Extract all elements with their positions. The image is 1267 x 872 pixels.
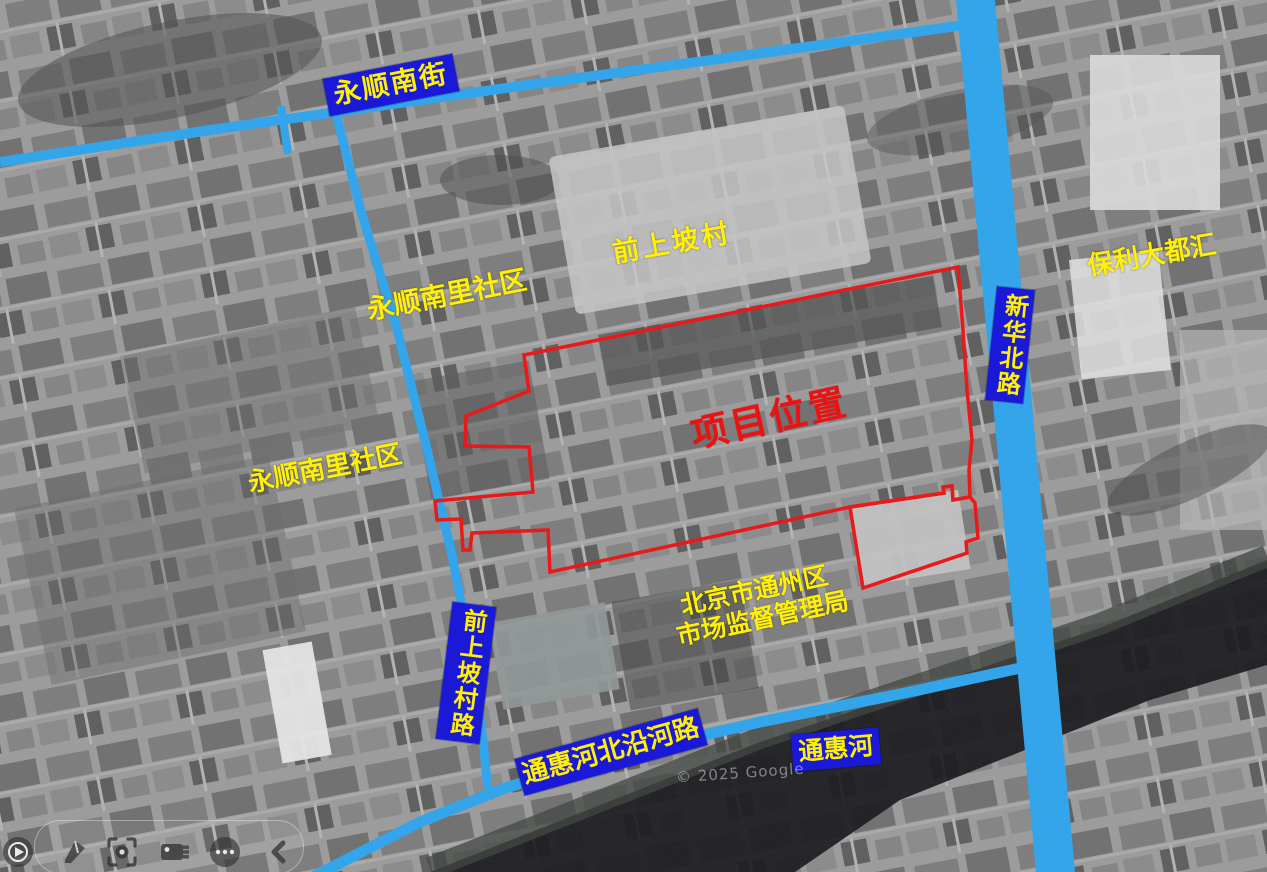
road-label-text: 新华北路 [992,292,1028,398]
laser-viewfinder-icon[interactable] [105,835,139,869]
slideshow-play-icon[interactable] [1,835,35,869]
more-options-icon[interactable] [208,835,242,869]
collapse-toolbar-icon[interactable] [262,835,296,869]
slideshow-toolbar [0,816,320,872]
eraser-icon[interactable] [158,835,192,869]
river-label-text: 通惠河 [797,733,874,766]
road-label-text: 前上坡村路 [446,607,487,739]
pen-icon[interactable] [58,835,92,869]
site-location-map: 永顺南街 前上坡村 永顺南里社区 保利大都汇 新华北路 项目位置 永顺南里社区 … [0,0,1267,872]
